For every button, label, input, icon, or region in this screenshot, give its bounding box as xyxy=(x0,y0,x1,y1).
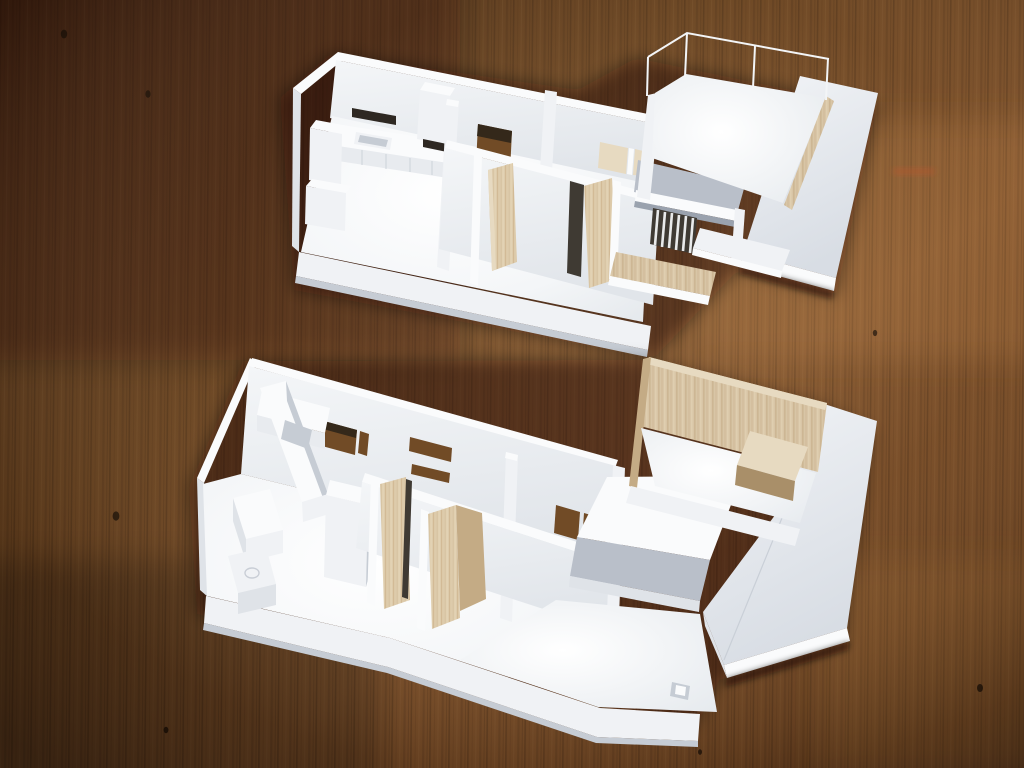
scene-canvas xyxy=(0,0,1024,768)
photo-architectural-models xyxy=(0,0,1024,768)
railing-post-4 xyxy=(647,57,648,96)
bottom-balsa-door-2a xyxy=(428,505,460,629)
bottom-balsa-door-2b xyxy=(456,505,486,611)
top-kitchen-fridge-front xyxy=(309,128,342,186)
top-kitchen-lower-cabinet-front xyxy=(305,186,346,231)
top-door2-opening-shadow xyxy=(567,181,584,277)
